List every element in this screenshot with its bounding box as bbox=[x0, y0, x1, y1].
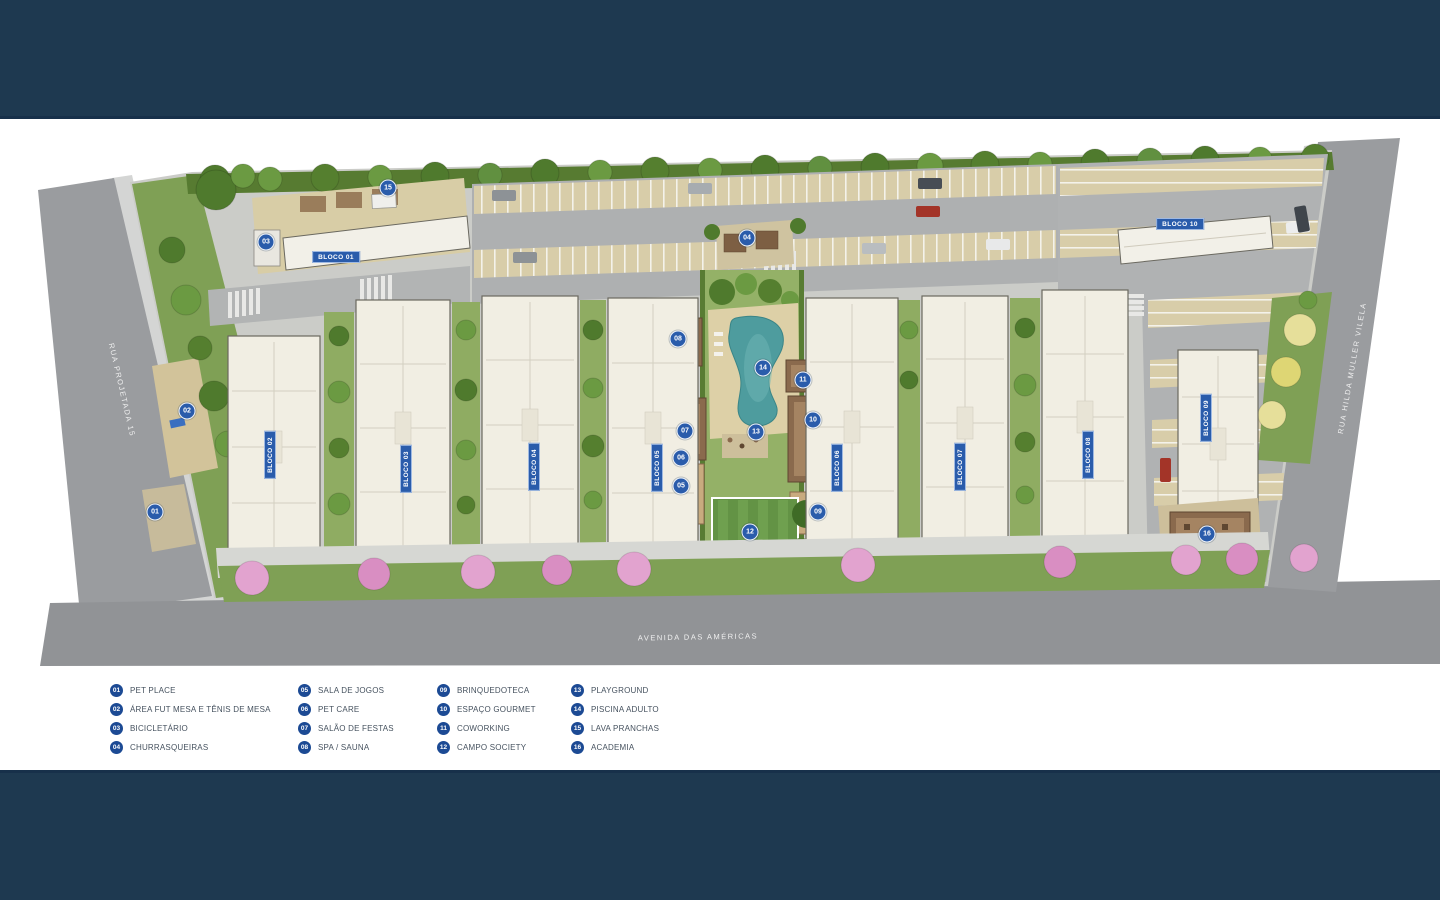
legend-item-label: CHURRASQUEIRAS bbox=[130, 743, 208, 752]
legend-number-badge: 06 bbox=[298, 703, 311, 716]
legend-item: 03 BICICLETÁRIO bbox=[110, 719, 271, 738]
legend-number-badge: 15 bbox=[571, 722, 584, 735]
map-marker-07: 07 bbox=[677, 423, 694, 440]
legend-item: 09 BRINQUEDOTECA bbox=[437, 681, 536, 700]
legend-item-label: PISCINA ADULTO bbox=[591, 705, 659, 714]
legend-item-label: SALÃO DE FESTAS bbox=[318, 724, 394, 733]
bloco-label-10: BLOCO 10 bbox=[1156, 218, 1204, 230]
legend-number-badge: 04 bbox=[110, 741, 123, 754]
bloco-label-08: BLOCO 08 bbox=[1082, 431, 1094, 479]
legend-column-4: 13 PLAYGROUND 14 PISCINA ADULTO 15 LAVA … bbox=[571, 681, 659, 757]
bottom-band bbox=[0, 770, 1440, 900]
legend-number-badge: 07 bbox=[298, 722, 311, 735]
legend-item-label: ESPAÇO GOURMET bbox=[457, 705, 536, 714]
legend-item-label: PET CARE bbox=[318, 705, 359, 714]
map-marker-02: 02 bbox=[179, 403, 196, 420]
legend-column-2: 05 SALA DE JOGOS 06 PET CARE 07 SALÃO DE… bbox=[298, 681, 394, 757]
legend-item-label: CAMPO SOCIETY bbox=[457, 743, 526, 752]
legend-number-badge: 10 bbox=[437, 703, 450, 716]
bloco-label-01: BLOCO 01 bbox=[312, 251, 360, 263]
legend-item: 12 CAMPO SOCIETY bbox=[437, 738, 536, 757]
legend-column-3: 09 BRINQUEDOTECA 10 ESPAÇO GOURMET 11 CO… bbox=[437, 681, 536, 757]
legend-number-badge: 02 bbox=[110, 703, 123, 716]
legend-item: 15 LAVA PRANCHAS bbox=[571, 719, 659, 738]
legend-number-badge: 11 bbox=[437, 722, 450, 735]
legend-number-badge: 08 bbox=[298, 741, 311, 754]
legend-item: 07 SALÃO DE FESTAS bbox=[298, 719, 394, 738]
bloco-label-05: BLOCO 05 bbox=[651, 444, 663, 492]
map-marker-16: 16 bbox=[1199, 526, 1216, 543]
legend-column-1: 01 PET PLACE 02 ÁREA FUT MESA E TÊNIS DE… bbox=[110, 681, 271, 757]
map-marker-11: 11 bbox=[795, 372, 812, 389]
legend-item-label: SPA / SAUNA bbox=[318, 743, 369, 752]
legend-number-badge: 09 bbox=[437, 684, 450, 697]
site-plan-illustration bbox=[0, 0, 1440, 900]
map-marker-15: 15 bbox=[380, 180, 397, 197]
legend-item: 16 ACADEMIA bbox=[571, 738, 659, 757]
map-marker-09: 09 bbox=[810, 504, 827, 521]
legend-item-label: BICICLETÁRIO bbox=[130, 724, 188, 733]
legend-item-label: ACADEMIA bbox=[591, 743, 634, 752]
legend-number-badge: 13 bbox=[571, 684, 584, 697]
legend-item: 02 ÁREA FUT MESA E TÊNIS DE MESA bbox=[110, 700, 271, 719]
map-marker-10: 10 bbox=[805, 412, 822, 429]
map-marker-12: 12 bbox=[742, 524, 759, 541]
legend-item: 01 PET PLACE bbox=[110, 681, 271, 700]
map-marker-04: 04 bbox=[739, 230, 756, 247]
legend-number-badge: 01 bbox=[110, 684, 123, 697]
siteplan-page: RUA PROJETADA 15 AVENIDA DAS AMÉRICAS RU… bbox=[0, 0, 1440, 900]
top-band bbox=[0, 0, 1440, 119]
map-marker-08: 08 bbox=[670, 331, 687, 348]
legend-item-label: PET PLACE bbox=[130, 686, 176, 695]
legend-item-label: COWORKING bbox=[457, 724, 510, 733]
bloco-label-04: BLOCO 04 bbox=[528, 443, 540, 491]
bloco-label-09: BLOCO 09 bbox=[1200, 394, 1212, 442]
bloco-label-06: BLOCO 06 bbox=[831, 444, 843, 492]
legend-item: 06 PET CARE bbox=[298, 700, 394, 719]
legend-number-badge: 03 bbox=[110, 722, 123, 735]
legend-item-label: PLAYGROUND bbox=[591, 686, 648, 695]
bloco-label-02: BLOCO 02 bbox=[264, 431, 276, 479]
legend: 01 PET PLACE 02 ÁREA FUT MESA E TÊNIS DE… bbox=[110, 681, 710, 761]
legend-item-label: SALA DE JOGOS bbox=[318, 686, 384, 695]
legend-number-badge: 16 bbox=[571, 741, 584, 754]
legend-item-label: ÁREA FUT MESA E TÊNIS DE MESA bbox=[130, 705, 271, 714]
legend-item: 10 ESPAÇO GOURMET bbox=[437, 700, 536, 719]
legend-number-badge: 14 bbox=[571, 703, 584, 716]
legend-number-badge: 05 bbox=[298, 684, 311, 697]
map-marker-01: 01 bbox=[147, 504, 164, 521]
map-marker-06: 06 bbox=[673, 450, 690, 467]
map-marker-03: 03 bbox=[258, 234, 275, 251]
legend-item: 04 CHURRASQUEIRAS bbox=[110, 738, 271, 757]
legend-item-label: LAVA PRANCHAS bbox=[591, 724, 659, 733]
legend-item: 08 SPA / SAUNA bbox=[298, 738, 394, 757]
legend-number-badge: 12 bbox=[437, 741, 450, 754]
bloco-label-03: BLOCO 03 bbox=[400, 445, 412, 493]
map-marker-05: 05 bbox=[673, 478, 690, 495]
bloco-label-07: BLOCO 07 bbox=[954, 443, 966, 491]
legend-item: 14 PISCINA ADULTO bbox=[571, 700, 659, 719]
map-marker-14: 14 bbox=[755, 360, 772, 377]
legend-item: 13 PLAYGROUND bbox=[571, 681, 659, 700]
map-marker-13: 13 bbox=[748, 424, 765, 441]
legend-item-label: BRINQUEDOTECA bbox=[457, 686, 529, 695]
legend-item: 11 COWORKING bbox=[437, 719, 536, 738]
legend-item: 05 SALA DE JOGOS bbox=[298, 681, 394, 700]
